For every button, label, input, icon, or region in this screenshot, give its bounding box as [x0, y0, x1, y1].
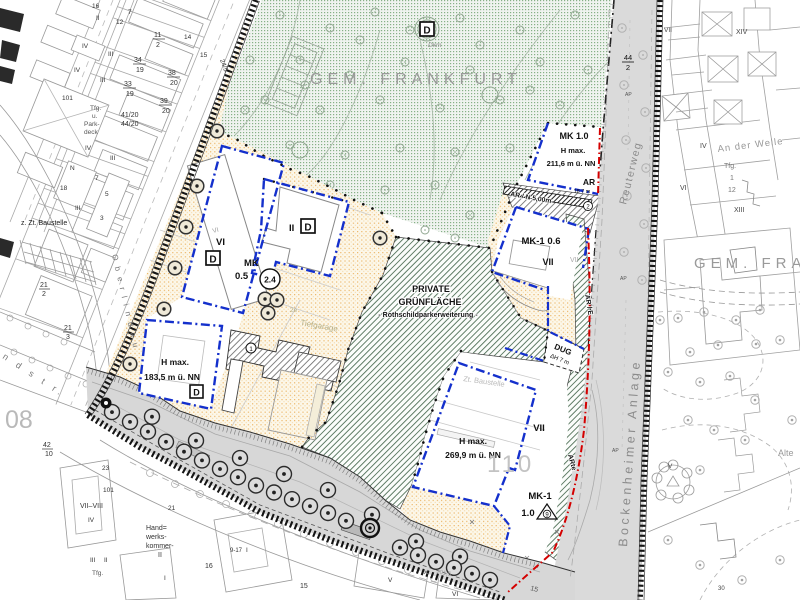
- svg-text:z. Zt. Baustelle: z. Zt. Baustelle: [21, 220, 67, 227]
- svg-text:19: 19: [136, 67, 144, 74]
- svg-text:15: 15: [300, 583, 308, 590]
- svg-text:VII–VIII: VII–VIII: [80, 503, 103, 510]
- svg-text:12: 12: [728, 187, 736, 194]
- svg-text:I: I: [164, 575, 166, 582]
- svg-text:3: 3: [66, 334, 70, 341]
- svg-text:16: 16: [92, 3, 100, 10]
- svg-text:VII: VII: [664, 27, 672, 34]
- svg-text:AP: AP: [625, 92, 632, 98]
- svg-text:PRIVATE: PRIVATE: [412, 284, 450, 294]
- svg-text:Tfg.: Tfg.: [724, 163, 736, 170]
- svg-text:12: 12: [116, 19, 124, 26]
- svg-text:21: 21: [64, 325, 72, 332]
- svg-text:Alte: Alte: [778, 448, 794, 458]
- svg-text:VI: VI: [680, 185, 687, 192]
- svg-text:7: 7: [128, 9, 132, 16]
- svg-text:44/20: 44/20: [121, 121, 139, 128]
- svg-text:D: D: [304, 223, 311, 234]
- svg-text:GEM. FRAN: GEM. FRAN: [694, 255, 800, 272]
- svg-text:IV: IV: [88, 517, 95, 524]
- svg-text:34: 34: [134, 57, 142, 64]
- svg-text:D: D: [423, 26, 430, 37]
- svg-text:werks-: werks-: [145, 534, 167, 541]
- svg-text:183,5 m ü. NN: 183,5 m ü. NN: [144, 372, 200, 382]
- svg-text:deck: deck: [84, 129, 98, 136]
- svg-text:Hand=: Hand=: [146, 525, 167, 532]
- svg-text:N: N: [70, 165, 75, 172]
- svg-text:IV: IV: [82, 43, 89, 50]
- svg-text:- Rothschildparkerweiterung -: - Rothschildparkerweiterung -: [378, 312, 478, 319]
- svg-text:101: 101: [103, 487, 114, 494]
- svg-text:Dkm: Dkm: [428, 42, 442, 49]
- svg-text:IV: IV: [700, 143, 707, 150]
- svg-text:H max.: H max.: [561, 146, 586, 155]
- svg-text:33: 33: [124, 81, 132, 88]
- svg-text:V: V: [388, 577, 393, 584]
- svg-text:H max.: H max.: [459, 436, 487, 446]
- svg-text:D: D: [209, 255, 216, 266]
- svg-text:II: II: [96, 15, 100, 22]
- svg-text:21: 21: [168, 505, 176, 512]
- svg-text:IV: IV: [85, 145, 92, 152]
- svg-text:XIV: XIV: [736, 29, 748, 36]
- svg-text:XIII: XIII: [734, 207, 745, 214]
- svg-text:41/20: 41/20: [121, 112, 139, 119]
- svg-text:10: 10: [45, 451, 53, 458]
- svg-text:VI: VI: [452, 591, 458, 598]
- svg-text:II: II: [104, 557, 108, 564]
- svg-text:VII: VII: [542, 257, 553, 267]
- svg-text:MK 1.0: MK 1.0: [559, 131, 588, 141]
- svg-text:VI: VI: [216, 237, 225, 248]
- svg-text:Park-: Park-: [84, 121, 100, 128]
- svg-text:110: 110: [487, 451, 534, 478]
- svg-text:II: II: [158, 552, 162, 559]
- svg-text:3: 3: [100, 215, 104, 222]
- svg-text:GRÜNFLÄCHE: GRÜNFLÄCHE: [399, 297, 462, 307]
- svg-text:III: III: [100, 77, 106, 84]
- svg-text:Tfg.: Tfg.: [92, 570, 103, 577]
- svg-text:42: 42: [43, 442, 51, 449]
- svg-text:2: 2: [42, 291, 46, 298]
- svg-text:20: 20: [170, 80, 178, 87]
- svg-text:16: 16: [205, 563, 213, 570]
- svg-text:kommer-: kommer-: [146, 543, 174, 550]
- svg-text:38: 38: [168, 70, 176, 77]
- svg-text:III: III: [108, 51, 114, 58]
- svg-text:H max.: H max.: [161, 357, 189, 367]
- svg-text:2: 2: [626, 63, 630, 72]
- svg-text:23: 23: [102, 465, 110, 472]
- svg-text:2e: 2e: [290, 307, 298, 314]
- svg-text:III: III: [110, 155, 116, 162]
- svg-text:I: I: [246, 547, 248, 554]
- svg-text:AP: AP: [612, 448, 619, 454]
- svg-text:1: 1: [249, 346, 253, 353]
- svg-text:AR: AR: [583, 177, 595, 187]
- svg-text:19: 19: [126, 91, 134, 98]
- svg-text:III: III: [90, 557, 96, 564]
- svg-text:18: 18: [60, 185, 68, 192]
- svg-text:7: 7: [95, 175, 99, 182]
- svg-text:MK: MK: [244, 258, 259, 269]
- svg-text:IV: IV: [74, 67, 81, 74]
- svg-text:44: 44: [624, 53, 632, 62]
- svg-text:30: 30: [718, 586, 725, 592]
- svg-text:211,6 m ü. NN: 211,6 m ü. NN: [547, 159, 596, 168]
- svg-text:9-17: 9-17: [230, 548, 243, 554]
- svg-text:2.4: 2.4: [264, 275, 276, 285]
- svg-text:20: 20: [162, 108, 170, 115]
- svg-text:VII: VII: [570, 257, 579, 264]
- svg-text:MK-1 0.6: MK-1 0.6: [521, 236, 560, 247]
- svg-text:III: III: [75, 205, 81, 212]
- svg-text:0.5: 0.5: [235, 271, 249, 282]
- svg-text:18 7 m: 18 7 m: [574, 189, 591, 195]
- svg-text:21: 21: [40, 282, 48, 289]
- svg-text:11: 11: [154, 32, 161, 39]
- svg-text:GEM. FRANKFURT: GEM. FRANKFURT: [310, 71, 522, 88]
- svg-text:II: II: [289, 223, 294, 234]
- svg-text:D: D: [193, 388, 200, 398]
- svg-text:V: V: [668, 463, 673, 470]
- svg-text:1.0: 1.0: [521, 508, 534, 519]
- svg-text:1: 1: [730, 175, 734, 182]
- svg-text:08: 08: [5, 406, 33, 434]
- svg-text:MK-1: MK-1: [528, 491, 552, 502]
- svg-text:u.: u.: [92, 113, 98, 120]
- svg-text:AP: AP: [620, 276, 627, 282]
- svg-text:2: 2: [156, 42, 160, 49]
- svg-text:101: 101: [62, 95, 73, 102]
- svg-text:14: 14: [184, 34, 192, 41]
- svg-text:VII: VII: [533, 423, 545, 434]
- svg-text:39: 39: [160, 98, 168, 105]
- svg-text:Tfg.: Tfg.: [90, 105, 101, 112]
- svg-text:15: 15: [200, 52, 208, 59]
- svg-text:5: 5: [105, 191, 109, 198]
